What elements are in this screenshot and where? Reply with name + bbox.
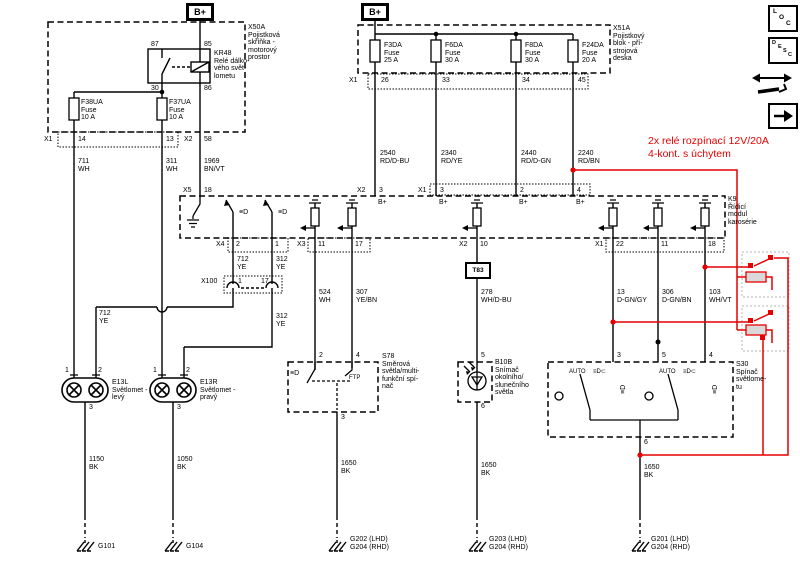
label-fuse-f38ua: F38UA Fuse 10 A xyxy=(81,99,103,122)
wire-dashed-ends xyxy=(85,516,640,538)
wire-1650-bk: 1650 BK xyxy=(644,464,660,479)
s78-internals xyxy=(307,362,352,410)
pin-x1-14: 14 xyxy=(78,136,86,144)
wires-black xyxy=(74,21,705,516)
auto-label: AUTO xyxy=(659,369,676,376)
conn-x5: X5 xyxy=(183,187,192,195)
conn-x4: X4 xyxy=(216,241,225,249)
pin-x4-1: 1 xyxy=(275,241,279,249)
bplus-label: B+ xyxy=(378,199,387,207)
label-x51a: X51A Pojistkový blok - pří- strojová des… xyxy=(613,25,645,63)
label-e13l: E13L Světlomet - levý xyxy=(112,379,147,402)
conn-x1: X1 xyxy=(418,187,427,195)
pin-5: 5 xyxy=(662,352,666,360)
headlamp-icon: ≡D xyxy=(290,370,299,378)
wire-1050-bk: 1050 BK xyxy=(177,456,193,471)
splice-t83: T83 xyxy=(465,262,491,279)
conn-x2: X2 xyxy=(184,136,193,144)
conn-x1: X1 xyxy=(349,77,358,85)
right-arrow-icon xyxy=(770,105,796,127)
pin-x1-4: 4 xyxy=(577,187,581,195)
bplus-label: B+ xyxy=(439,199,448,207)
connector-x100-symbol xyxy=(227,282,278,288)
wire-1650-bk: 1650 BK xyxy=(481,462,497,477)
pin-x3-17: 17 xyxy=(355,241,363,249)
label-k9-bcm: K9 Řídicí modul karosérie xyxy=(728,196,757,226)
pin-87: 87 xyxy=(151,41,159,49)
label-s78: S78 Směrová světla/multi- funkční spí- n… xyxy=(382,353,419,391)
wire-2240: 2240 RD/BN xyxy=(578,150,600,165)
label-b10b: B10B Snímač okolního/ slunečního světla xyxy=(495,359,529,397)
label-fuse-f8da: F8DA Fuse 30 A xyxy=(525,42,543,65)
wire-2440: 2440 RD/D-GN xyxy=(521,150,551,165)
battery-feed-terminal: B+ xyxy=(361,3,389,21)
label-fuse-f37ua: F37UA Fuse 10 A xyxy=(169,99,191,122)
pin-x1-13: 13 xyxy=(166,136,174,144)
pin-x3-11: 11 xyxy=(318,241,325,249)
pin-30: 30 xyxy=(151,85,159,93)
pin-5: 5 xyxy=(481,352,485,360)
ground-g101: G101 xyxy=(98,543,115,551)
wire-13-dgngy: 13 D-GN/GY xyxy=(617,289,647,304)
wire-312-ye: 312 YE xyxy=(276,256,288,271)
pin-45: 45 xyxy=(578,77,586,85)
pin-1: 1 xyxy=(65,367,69,375)
label-x50a: X50A Pojistková skříňka - motorový prost… xyxy=(248,24,280,62)
wire-524-wh: 524 WH xyxy=(319,289,331,304)
wire-2540: 2540 RD/D-BU xyxy=(380,150,409,165)
wire-1650-bk: 1650 BK xyxy=(341,460,357,475)
mod-annotation: 2x relé rozpínací 12V/20A 4-kont. s úchy… xyxy=(648,135,769,161)
bcm-internals xyxy=(187,196,711,231)
wire-307-yebn: 307 YE/BN xyxy=(356,289,377,304)
pin-85: 85 xyxy=(204,41,212,49)
wire-311-wh: 311 WH xyxy=(166,158,178,173)
pin-3: 3 xyxy=(341,414,345,422)
pin-x4-2: 2 xyxy=(236,241,240,249)
pin-x1-3: 3 xyxy=(440,187,444,195)
switch-positions-icon: ≡D⊂ xyxy=(683,369,696,376)
next-page-button[interactable] xyxy=(768,103,798,129)
headlamp-icon: ≡D xyxy=(620,385,627,394)
desc-button[interactable]: D E S C xyxy=(768,37,798,64)
pin-34: 34 xyxy=(522,77,530,85)
battery-feed-terminal: B+ xyxy=(186,3,214,21)
conn-x1: X1 xyxy=(44,136,53,144)
loc-button[interactable]: L O C xyxy=(768,5,798,32)
pin-33: 33 xyxy=(442,77,450,85)
conn-x1: X1 xyxy=(595,241,604,249)
bplus-label: B+ xyxy=(519,199,528,207)
bplus-label: B+ xyxy=(576,199,585,207)
ground-g202: G202 (LHD) G204 (RHD) xyxy=(350,536,389,551)
ground-g201: G201 (LHD) G204 (RHD) xyxy=(651,536,690,551)
wire-306-dgnbn: 306 D-GN/BN xyxy=(662,289,692,304)
conn-x3: X3 xyxy=(297,241,306,249)
pin-1: 1 xyxy=(153,367,157,375)
wiring-diagram: ≡D ≡D xyxy=(0,0,800,563)
conn-x2: X2 xyxy=(459,241,468,249)
wiring-diagram-canvas: ≡D ≡D xyxy=(0,0,800,563)
ground-g203: G203 (LHD) G204 (RHD) xyxy=(489,536,528,551)
pin-3: 3 xyxy=(89,404,93,412)
pin-6: 6 xyxy=(481,403,485,411)
bcm-k9-outline xyxy=(180,196,725,238)
wire-712-ye: 712 YE xyxy=(237,256,249,271)
pin-86: 86 xyxy=(204,85,212,93)
pin-2: 2 xyxy=(98,367,102,375)
wire-312-ye: 312 YE xyxy=(276,313,288,328)
toolbar-icons[interactable] xyxy=(752,74,792,93)
pin-x1-22: 22 xyxy=(616,241,624,249)
ground-g104: G104 xyxy=(186,543,203,551)
pin-4: 4 xyxy=(356,352,360,360)
label-s30: S30 Spínač světlome- tu xyxy=(736,361,766,391)
headlamp-icon: ≡D xyxy=(712,385,719,394)
pin-x2-10: 10 xyxy=(480,241,488,249)
wire-2340: 2340 RD/YE xyxy=(441,150,462,165)
label-fuse-f3da: F3DA Fuse 25 A xyxy=(384,42,402,65)
pin-2: 2 xyxy=(186,367,190,375)
pin-3: 3 xyxy=(177,404,181,412)
pin-3: 3 xyxy=(617,352,621,360)
wire-1150-bk: 1150 BK xyxy=(89,456,104,471)
pin-x1-11: 11 xyxy=(661,241,668,249)
wire-1969-bnvt: 1969 BN/VT xyxy=(204,158,225,173)
pin-x2-3: 3 xyxy=(379,187,383,195)
label-kr48: KR48 Relé dálko- vého svět- lometu xyxy=(214,50,249,80)
headlamp-icon: ≡D xyxy=(239,209,248,217)
wire-103-whvt: 103 WH/VT xyxy=(709,289,732,304)
ftp-label: FTP xyxy=(349,375,360,382)
switch-positions-icon: ≡D⊂ xyxy=(593,369,606,376)
label-fuse-f6da: F6DA Fuse 30 A xyxy=(445,42,463,65)
pin-4: 4 xyxy=(709,352,713,360)
label-e13r: E13R Světlomet - pravý xyxy=(200,379,235,402)
route-arrows-icon[interactable] xyxy=(752,74,792,93)
auto-label: AUTO xyxy=(569,369,586,376)
pin-6: 6 xyxy=(644,439,648,447)
wire-711-wh: 711 WH xyxy=(78,158,90,173)
wire-712-ye: 712 YE xyxy=(99,310,111,325)
pin-x1-18: 18 xyxy=(708,241,716,249)
pin-x100-17: 17 xyxy=(261,278,269,286)
wire-278-whdbu: 278 WH/D-BU xyxy=(481,289,512,304)
s30-internals xyxy=(555,374,678,437)
label-fuse-f24da: F24DA Fuse 20 A xyxy=(582,42,604,65)
b10b-sensor-symbol xyxy=(464,362,486,390)
pin-x100-1: 1 xyxy=(238,278,242,286)
add-relay-2-coil xyxy=(746,325,766,335)
pin-x1-2: 2 xyxy=(520,187,524,195)
label-x100: X100 xyxy=(201,278,217,286)
headlamp-icon: ≡D xyxy=(278,209,287,217)
add-relay-1-coil xyxy=(746,272,766,282)
pin-2: 2 xyxy=(319,352,323,360)
pin-x5-18: 18 xyxy=(204,187,212,195)
pin-26: 26 xyxy=(381,77,389,85)
switch-s78-outline xyxy=(288,362,378,412)
fuse-symbols xyxy=(69,40,578,120)
pin-x2-58: 58 xyxy=(204,136,212,144)
conn-x2: X2 xyxy=(357,187,366,195)
